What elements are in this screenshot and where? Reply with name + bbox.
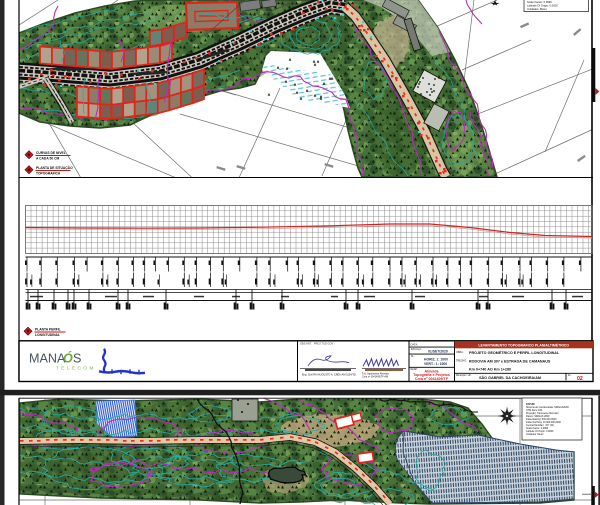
svg-text:Município / UF:: Município / UF:	[456, 375, 472, 377]
svg-text:02: 02	[577, 376, 583, 382]
svg-text:RODOVIA AM 307 e ESTRADA DE CA: RODOVIA AM 307 e ESTRADA DE CAMANAUS	[469, 360, 551, 364]
svg-text:Crea nº 0041409/TF: Crea nº 0041409/TF	[415, 377, 449, 381]
svg-text:Km 0+740 AO Km 1+280: Km 0+740 AO Km 1+280	[469, 368, 511, 372]
svg-text:Crea nº 0041409/TF-AM: Crea nº 0041409/TF-AM	[362, 374, 388, 378]
svg-text:Eng. Civil RAI AUGUSTO A. CREA: Eng. Civil RAI AUGUSTO A. CREA-AM 0104/T…	[302, 373, 356, 376]
svg-text:PROJETO GEOMÉTRICO E PERFIL LO: PROJETO GEOMÉTRICO E PERFIL LONGITUDINAL	[469, 350, 560, 355]
svg-text:FL.:: FL.:	[568, 375, 572, 377]
svg-text:OBS ANT. PROJ TUD GOV.: OBS ANT. PROJ TUD GOV.	[300, 341, 334, 345]
svg-text:TELECOM: TELECOM	[56, 365, 96, 371]
svg-text:PLANTA PERFIL: PLANTA PERFIL	[35, 328, 61, 332]
svg-text:PLANTA DE SITUAÇÃO: PLANTA DE SITUAÇÃO	[36, 165, 73, 170]
svg-text:FL.:: FL.:	[411, 355, 416, 358]
svg-text:Ó: Ó	[63, 350, 73, 365]
svg-text:DATA:: DATA:	[411, 343, 419, 347]
svg-text:TOPOGRAFICA: TOPOGRAFICA	[36, 171, 61, 175]
svg-text:OBRA:: OBRA:	[456, 351, 464, 354]
svg-text:LEVANTAMENTO TOPOGRAFICO PLANI: LEVANTAMENTO TOPOGRAFICO PLANIALTIMÉTRIC…	[478, 342, 569, 347]
svg-text:Latitude Of Origin: 0,0000: Latitude Of Origin: 0,0000	[527, 4, 558, 8]
svg-text:RESP.:: RESP.:	[411, 368, 419, 371]
svg-text:S: S	[73, 351, 81, 365]
svg-text:MANA: MANA	[29, 351, 66, 365]
svg-text:Unidades: Meter: Unidades: Meter	[526, 433, 544, 436]
svg-text:ESCALA:: ESCALA:	[411, 348, 422, 351]
svg-text:VERT.: 1: 1000: VERT.: 1: 1000	[424, 362, 447, 366]
svg-text:SÃO GABRIEL DA CACHOEIRA/AM: SÃO GABRIEL DA CACHOEIRA/AM	[479, 375, 541, 380]
svg-text:HORIZ. 1: 1000: HORIZ. 1: 1000	[424, 358, 448, 362]
svg-text:TRECHO:: TRECHO:	[456, 359, 467, 362]
svg-text:Unidades: Meter: Unidades: Meter	[527, 7, 547, 11]
svg-text:01/SET/2020: 01/SET/2020	[428, 350, 448, 354]
svg-text:LONGITUDINAL: LONGITUDINAL	[35, 333, 60, 337]
svg-text:CURVAS DE NIVEL: CURVAS DE NIVEL	[36, 151, 66, 155]
svg-text:Scale Factor: 0,9996: Scale Factor: 0,9996	[527, 0, 552, 4]
svg-text:A CADA 50 CM: A CADA 50 CM	[36, 156, 59, 160]
